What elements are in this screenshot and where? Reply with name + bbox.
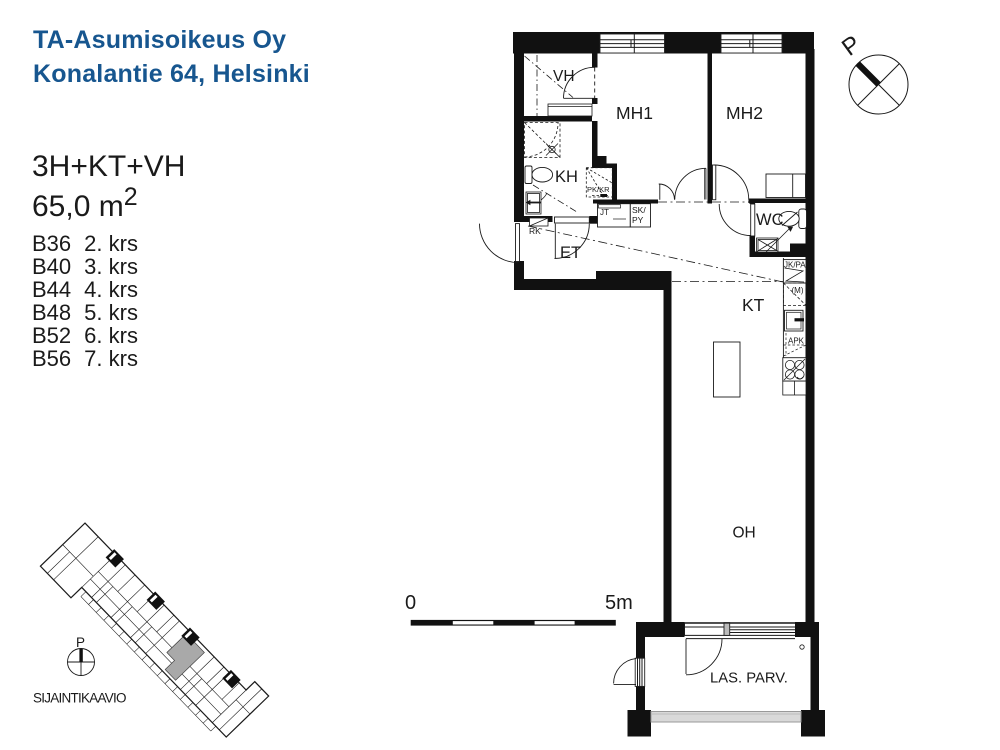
svg-text:MH2: MH2: [726, 103, 763, 123]
svg-text:MH1: MH1: [616, 103, 653, 123]
svg-text:LAS. PARV.: LAS. PARV.: [710, 671, 788, 687]
svg-text:(M): (M): [792, 286, 804, 295]
svg-text:0: 0: [405, 592, 416, 614]
svg-text:VH: VH: [553, 68, 575, 85]
svg-text:SIJAINTIKAAVIO: SIJAINTIKAAVIO: [33, 691, 126, 706]
svg-text:OH: OH: [733, 525, 756, 542]
svg-text:PY: PY: [632, 215, 644, 225]
svg-text:SK/: SK/: [632, 205, 646, 215]
svg-text:APK: APK: [788, 337, 805, 346]
svg-text:5m: 5m: [605, 592, 633, 614]
svg-text:P: P: [76, 635, 85, 650]
svg-text:JK/PA: JK/PA: [784, 261, 806, 270]
svg-text:ET: ET: [560, 244, 581, 262]
svg-text:JT: JT: [600, 208, 609, 217]
svg-text:KT: KT: [742, 295, 765, 315]
svg-text:P: P: [837, 30, 866, 61]
svg-text:KH: KH: [555, 168, 578, 186]
svg-text:PK/KR: PK/KR: [587, 185, 610, 194]
svg-text:RK: RK: [529, 226, 541, 236]
svg-text:WC: WC: [756, 211, 784, 229]
